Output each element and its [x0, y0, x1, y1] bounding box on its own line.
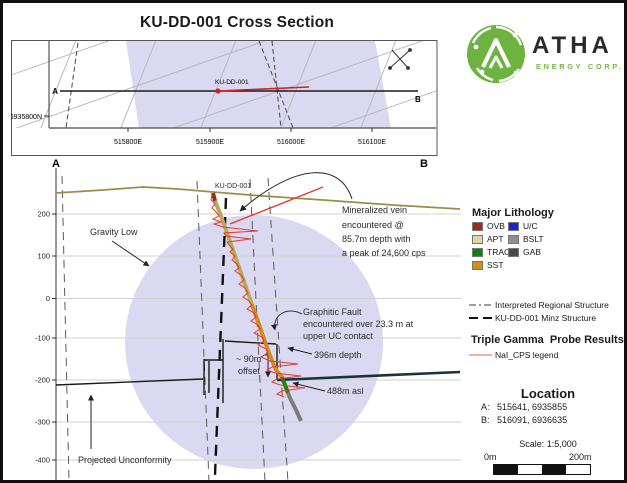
mineralized-text: 85.7m depth with	[342, 234, 411, 244]
location-title: Location	[473, 386, 623, 401]
lith-ovb-segment	[213, 193, 215, 201]
minz-structure-label: KU-DD-001 Minz Structure	[495, 313, 596, 323]
map-easting-label: 515900E	[196, 139, 224, 146]
svg-text:-300: -300	[35, 418, 50, 427]
graphitic-text: encountered over 23.3 m at	[303, 319, 414, 329]
ovb-swatch	[472, 222, 483, 231]
gravity-low-arrow	[112, 241, 149, 266]
regional-structure-label: Interpreted Regional Structure	[495, 300, 609, 310]
cross-section-plot: 200 100 0 -100 -200 -300 -400 A B	[11, 152, 468, 483]
cross-section-figure: KU-DD-001 Cross Section ATHA ENERGY CORP…	[0, 0, 627, 483]
section-b-label: B	[420, 158, 428, 170]
mineralized-text: a peak of 24,600 cps	[342, 248, 426, 258]
lithology-legend-title: Major Lithology	[472, 207, 554, 219]
asl-488-text: 488m asl	[327, 386, 364, 396]
graphitic-text: Graphitic Fault	[303, 307, 362, 317]
figure-title: KU-DD-001 Cross Section	[3, 14, 471, 32]
mineralized-text: encountered @	[342, 220, 404, 230]
logo-brand-text: ATHA	[532, 32, 613, 60]
map-a-label: A	[52, 87, 58, 96]
map-easting-label: 516000E	[277, 139, 305, 146]
svg-text:-400: -400	[35, 456, 50, 465]
offset-text: ~ 90m	[236, 354, 261, 364]
mineralized-text: Mineralized vein	[342, 205, 407, 215]
map-easting-label: 515800E	[114, 139, 142, 146]
gab-swatch	[508, 248, 519, 257]
logo-subtitle-text: ENERGY CORP.	[536, 62, 624, 71]
elevation-tick-labels: 200 100 0 -100 -200 -300 -400	[35, 210, 50, 465]
map-easting-label: 516100E	[358, 139, 386, 146]
svg-text:-100: -100	[35, 334, 50, 343]
bslt-swatch	[508, 235, 519, 244]
minz-structure-sample-line	[469, 315, 492, 321]
nai-cps-label: NaI_CPS legend	[495, 350, 558, 360]
section-hole-label: KU-DD-001	[215, 183, 251, 190]
scale-bar	[493, 464, 591, 475]
location-b: B: 516091, 6936635	[481, 415, 567, 425]
plan-map: 6935800N 515800E 515900E 516000E 516100E…	[11, 40, 438, 156]
trac-swatch	[472, 248, 483, 257]
regional-structure-sample-line	[469, 302, 492, 308]
mineralized-vein-arrow	[240, 173, 352, 211]
location-a: A: 515641, 6935855	[481, 402, 567, 412]
apt-swatch	[472, 235, 483, 244]
bslt-label: BSLT	[523, 234, 544, 244]
ovb-label: OVB	[487, 221, 505, 231]
map-b-label: B	[415, 95, 421, 104]
section-a-label: A	[52, 158, 60, 170]
sst-swatch	[472, 261, 483, 270]
gamma-legend-title: Triple Gamma Probe Results	[471, 334, 624, 346]
sst-label: SST	[487, 260, 504, 270]
nai-cps-sample-line	[469, 352, 492, 358]
offset-text: offset	[238, 366, 260, 376]
scalebar-left-label: 0m	[484, 452, 497, 462]
map-hole-label: KU-DD-001	[215, 79, 249, 86]
scalebar-right-label: 200m	[569, 452, 592, 462]
svg-text:100: 100	[37, 252, 50, 261]
trac-label: TRAC	[487, 247, 510, 257]
svg-text:-200: -200	[35, 376, 50, 385]
gravity-low-text: Gravity Low	[90, 227, 138, 237]
gab-label: GAB	[523, 247, 541, 257]
svg-text:0: 0	[46, 294, 50, 303]
depth-396-text: 396m depth	[314, 350, 362, 360]
apt-label: APT	[487, 234, 504, 244]
uc-label: U/C	[523, 221, 538, 231]
atha-logo-icon	[465, 21, 531, 89]
scale-text: Scale: 1:5,000	[473, 439, 623, 449]
svg-text:200: 200	[37, 210, 50, 219]
projected-unconformity-text: Projected Unconformity	[78, 455, 172, 465]
graphitic-text: upper UC contact	[303, 331, 374, 341]
map-northing-label: 6935800N	[11, 114, 42, 121]
uc-swatch	[508, 222, 519, 231]
map-corridor-band	[126, 41, 391, 128]
map-collar-dot	[215, 88, 220, 93]
